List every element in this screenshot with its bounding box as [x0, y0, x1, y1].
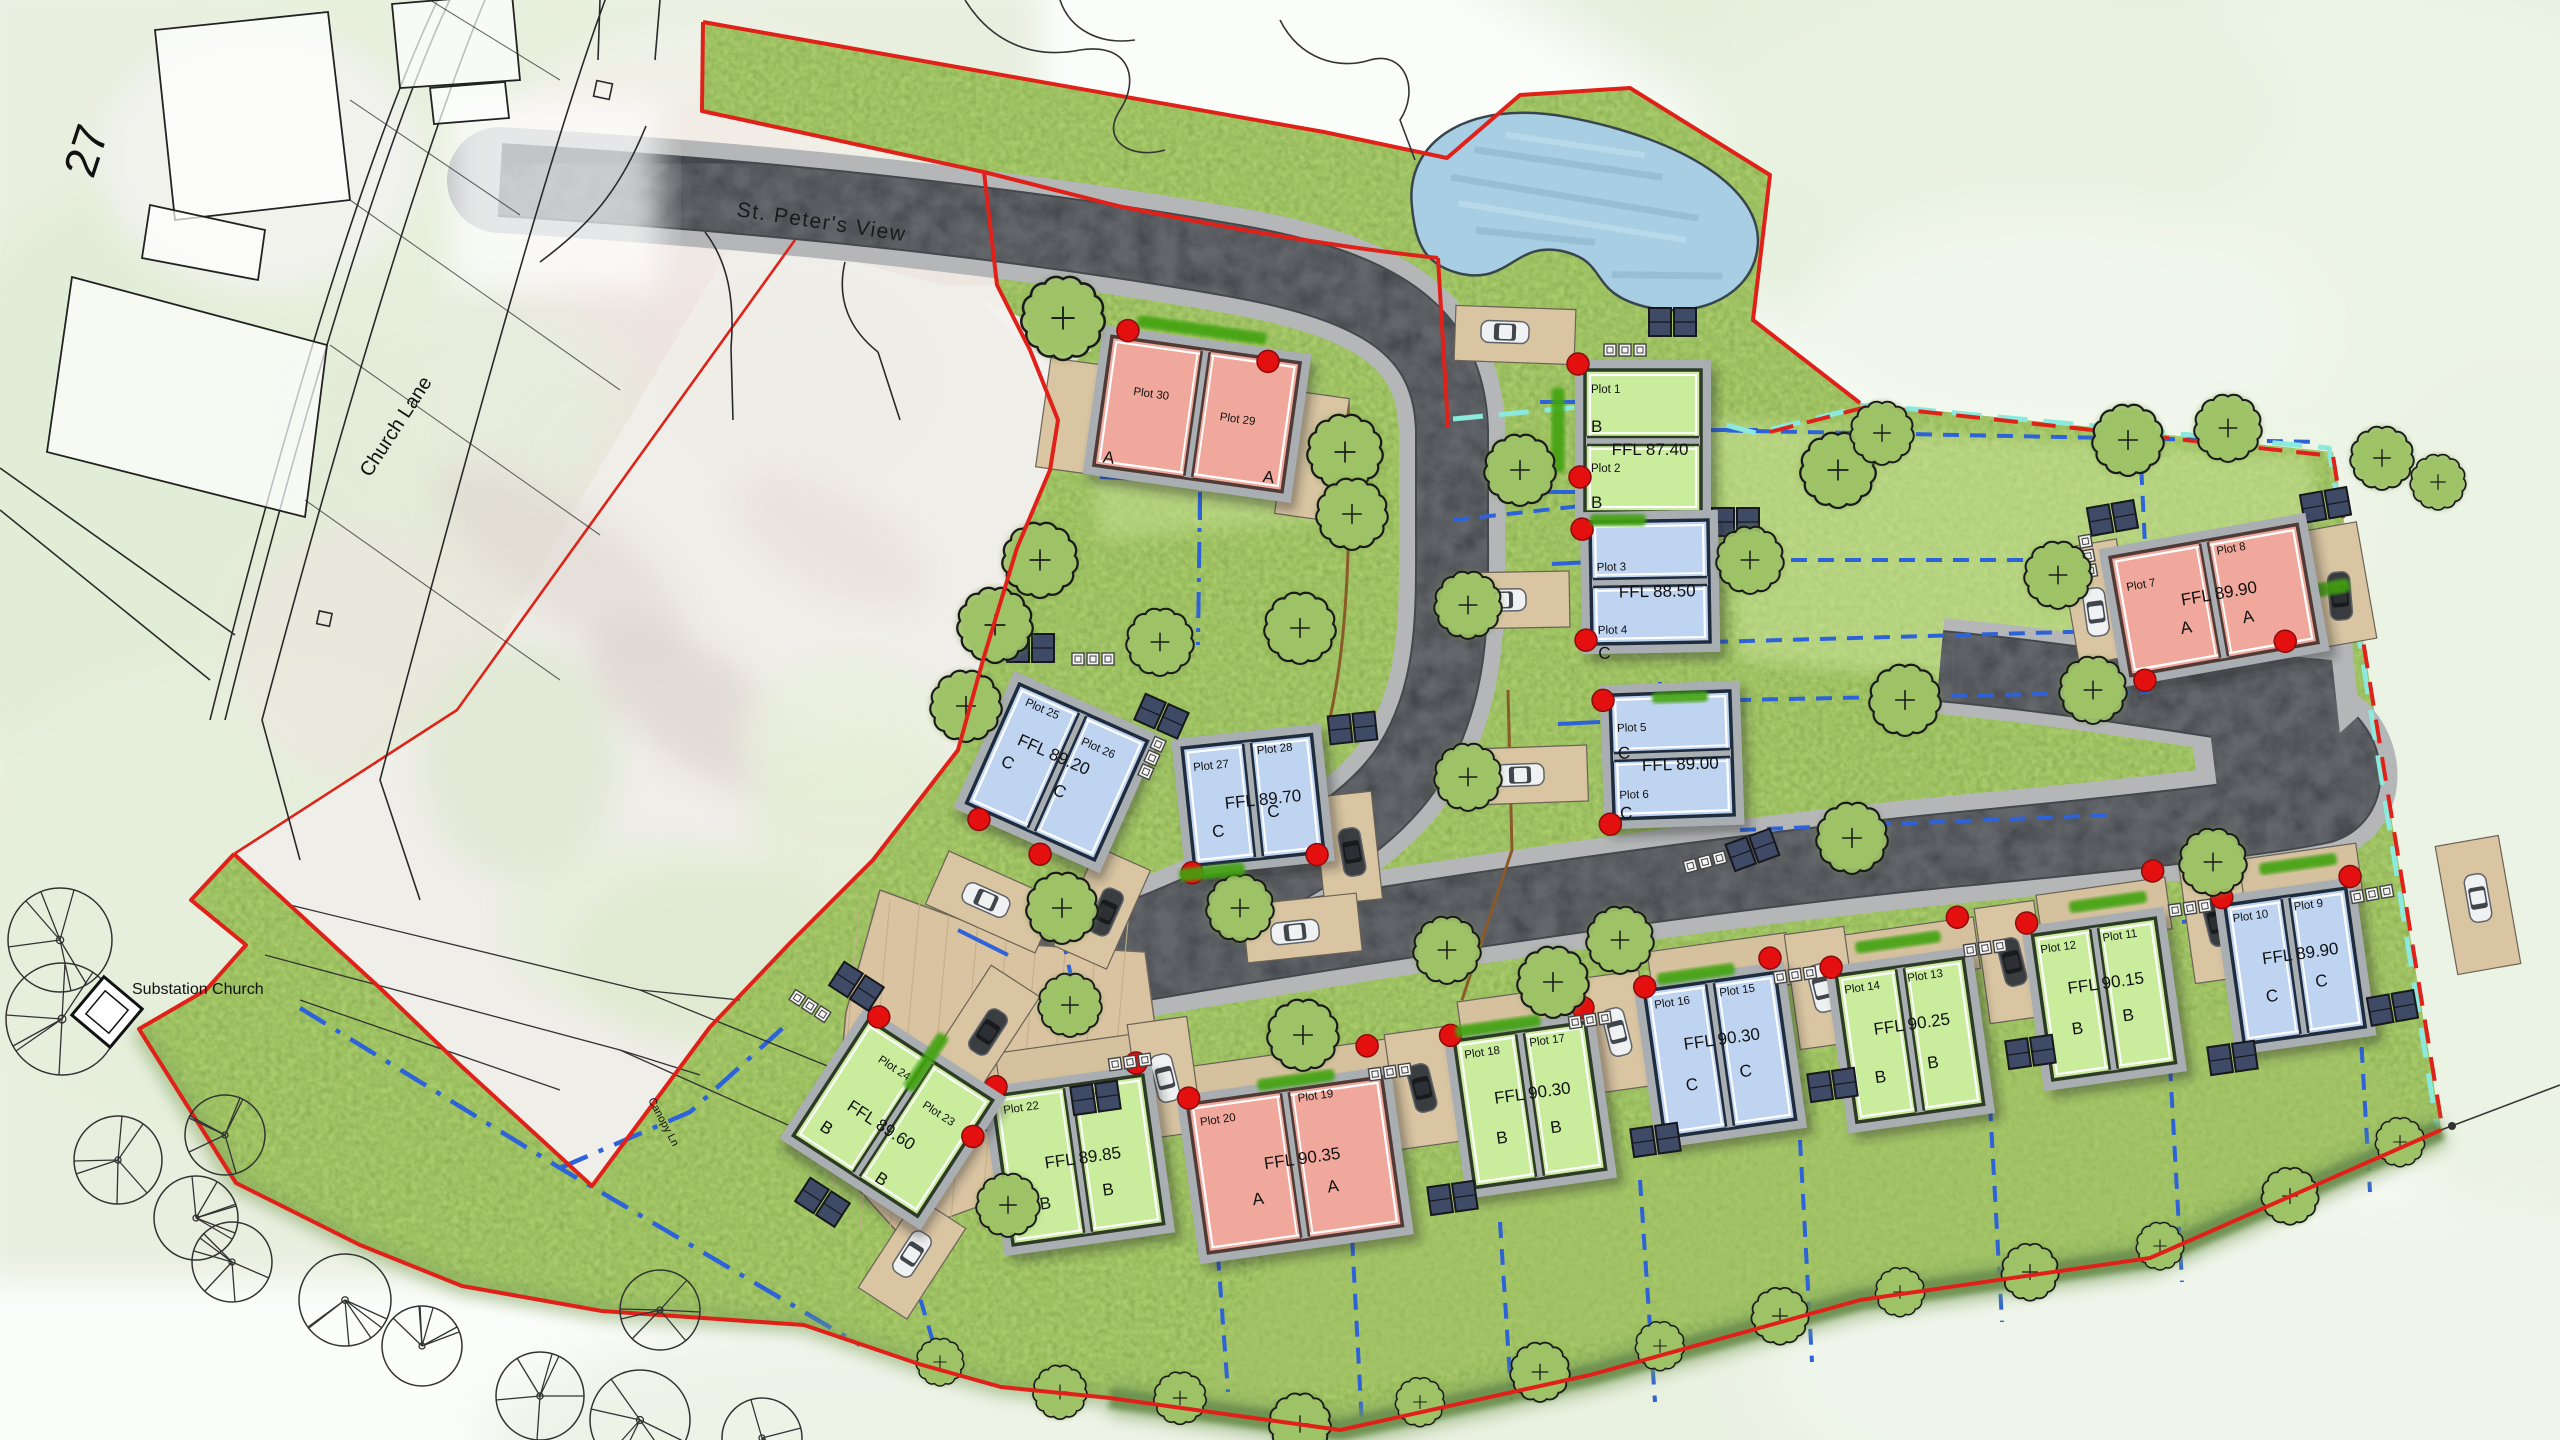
svg-text:B: B	[1591, 417, 1602, 436]
svg-text:Substation Church: Substation Church	[132, 981, 264, 998]
svg-text:Plot 6: Plot 6	[1619, 789, 1649, 802]
svg-text:Plot 1: Plot 1	[1591, 384, 1620, 396]
svg-text:C: C	[1211, 821, 1225, 841]
svg-text:C: C	[1266, 801, 1280, 821]
svg-text:Plot 3: Plot 3	[1597, 561, 1627, 574]
svg-text:C: C	[1685, 1074, 1700, 1095]
svg-text:C: C	[1598, 644, 1611, 663]
svg-text:C: C	[1620, 803, 1633, 822]
svg-text:C: C	[2314, 971, 2329, 992]
svg-text:C: C	[2265, 986, 2280, 1007]
svg-text:C: C	[1738, 1061, 1753, 1082]
svg-text:Plot 4: Plot 4	[1598, 624, 1628, 637]
svg-text:Plot 2: Plot 2	[1591, 463, 1620, 475]
svg-text:B: B	[1591, 493, 1602, 512]
svg-text:FFL 87.40: FFL 87.40	[1612, 440, 1689, 459]
svg-text:C: C	[1618, 743, 1631, 762]
svg-text:FFL 88.50: FFL 88.50	[1619, 581, 1696, 601]
svg-text:Plot 5: Plot 5	[1617, 722, 1647, 735]
svg-text:FFL 89.00: FFL 89.00	[1642, 753, 1719, 775]
